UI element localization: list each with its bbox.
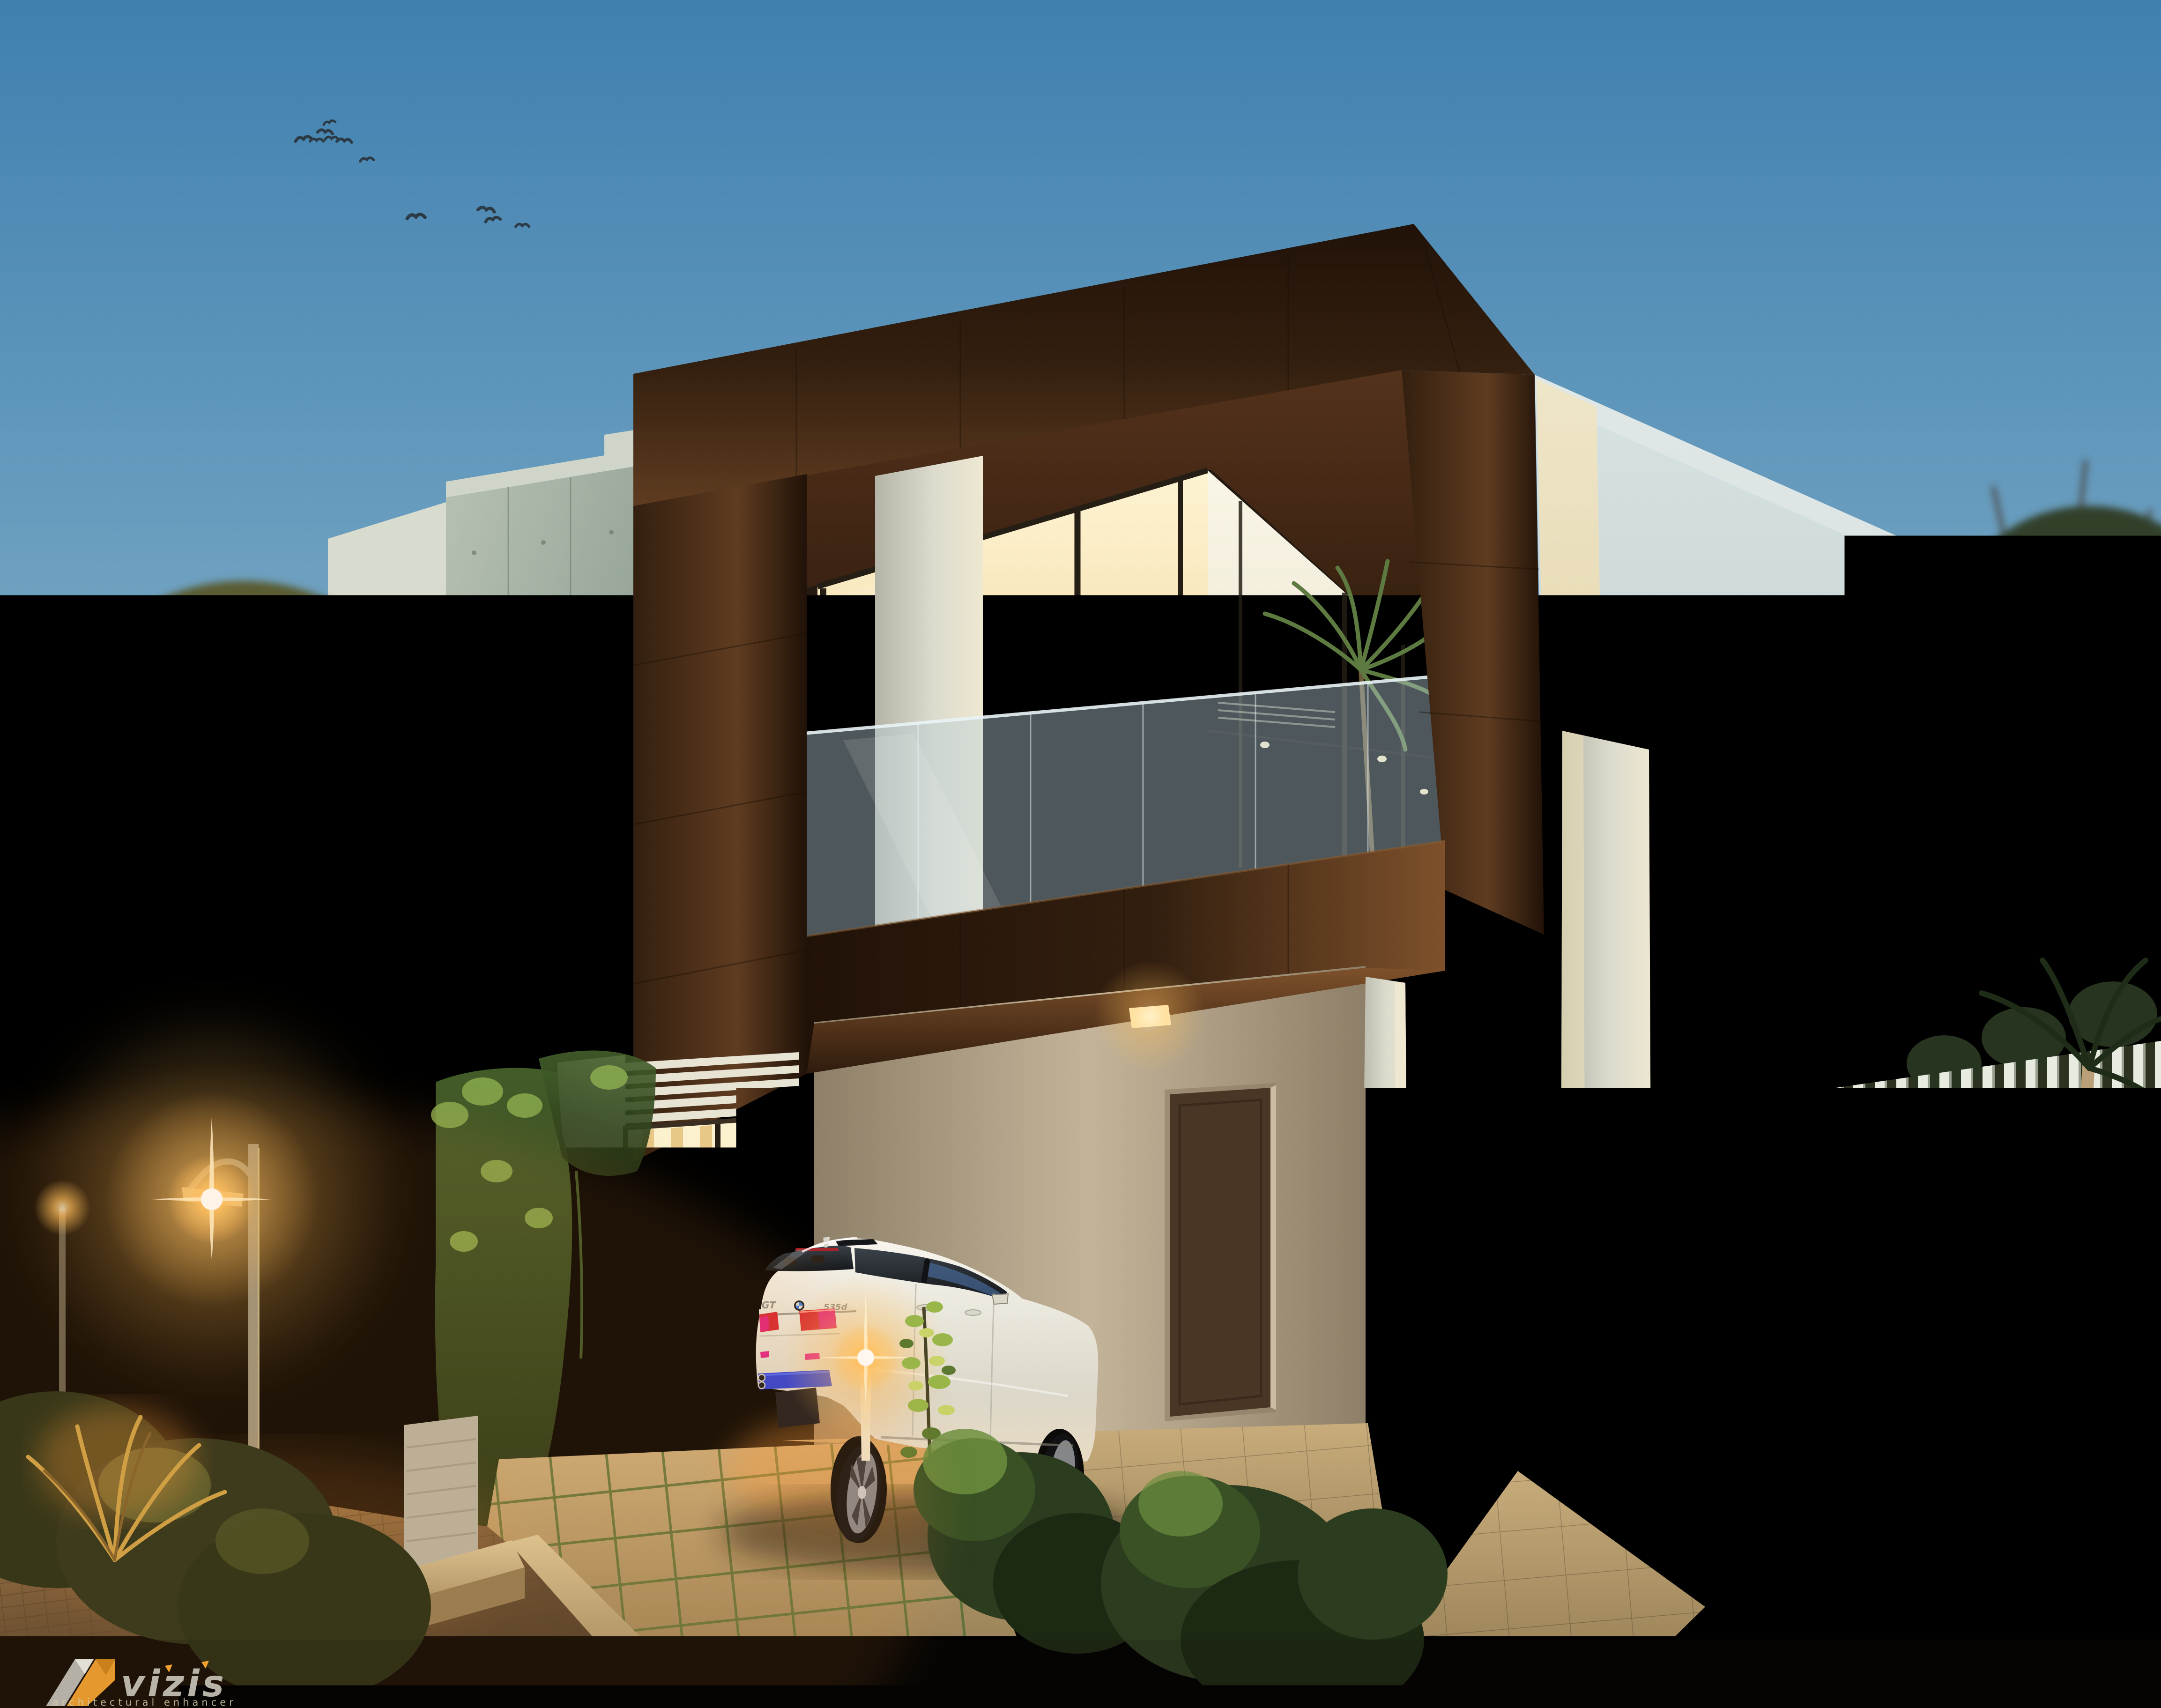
door-handle-front bbox=[965, 1310, 981, 1315]
bollard-light-right bbox=[1677, 1331, 1812, 1495]
far-lamp-pole bbox=[59, 1209, 66, 1415]
concrete-recessed-window bbox=[528, 674, 615, 988]
car-badge-gt: GT bbox=[762, 1300, 776, 1311]
far-lamp-glow bbox=[34, 1180, 90, 1236]
rendered-villa-scene: GT 535d bbox=[0, 0, 2161, 1708]
lamp-glow bbox=[104, 1092, 319, 1307]
taillight-left bbox=[759, 1312, 779, 1332]
watermark-tagline: architectural enhancer bbox=[52, 1697, 237, 1708]
b-pillar bbox=[924, 1259, 928, 1283]
side-mirror bbox=[992, 1294, 1008, 1304]
watermark-logo: vizis architectural enhancer bbox=[46, 1659, 237, 1708]
entry-door bbox=[1165, 1083, 1276, 1421]
carport-ceiling-lamp bbox=[1094, 960, 1206, 1073]
